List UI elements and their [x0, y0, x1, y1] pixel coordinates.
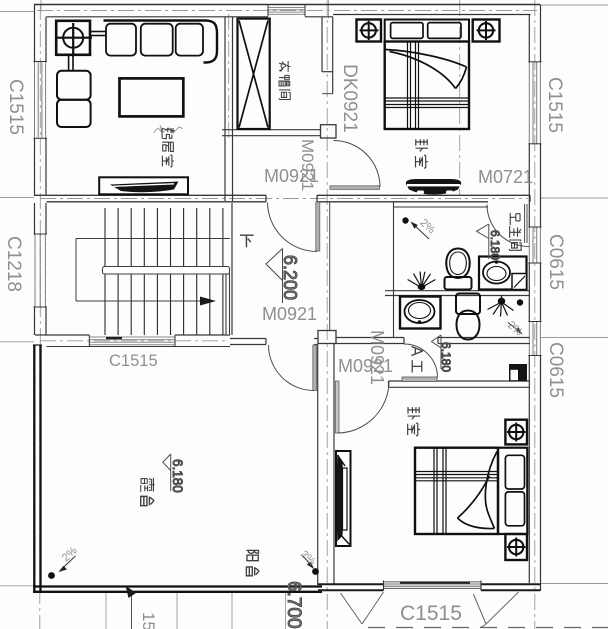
svg-text:C1515: C1515 [109, 352, 158, 370]
svg-text:6.200: 6.200 [280, 255, 300, 300]
svg-text:C1515: C1515 [5, 79, 26, 135]
svg-text:C0615: C0615 [545, 342, 566, 398]
svg-text:6.700: 6.700 [283, 581, 304, 629]
svg-text:DK0921: DK0921 [339, 64, 360, 133]
svg-text:C1515: C1515 [544, 77, 565, 133]
svg-text:C1515: C1515 [400, 602, 462, 625]
svg-text:6.180: 6.180 [488, 230, 502, 260]
svg-text:6.180: 6.180 [170, 459, 185, 493]
svg-text:C1218: C1218 [3, 236, 24, 292]
svg-text:M0921: M0921 [264, 166, 319, 186]
svg-text:M0921: M0921 [262, 304, 317, 324]
svg-text:M0721: M0721 [478, 167, 533, 187]
svg-text:15: 15 [139, 612, 158, 629]
svg-text:C0615: C0615 [545, 234, 566, 290]
svg-text:M0921: M0921 [367, 330, 387, 385]
svg-text:6.180: 6.180 [439, 342, 453, 372]
